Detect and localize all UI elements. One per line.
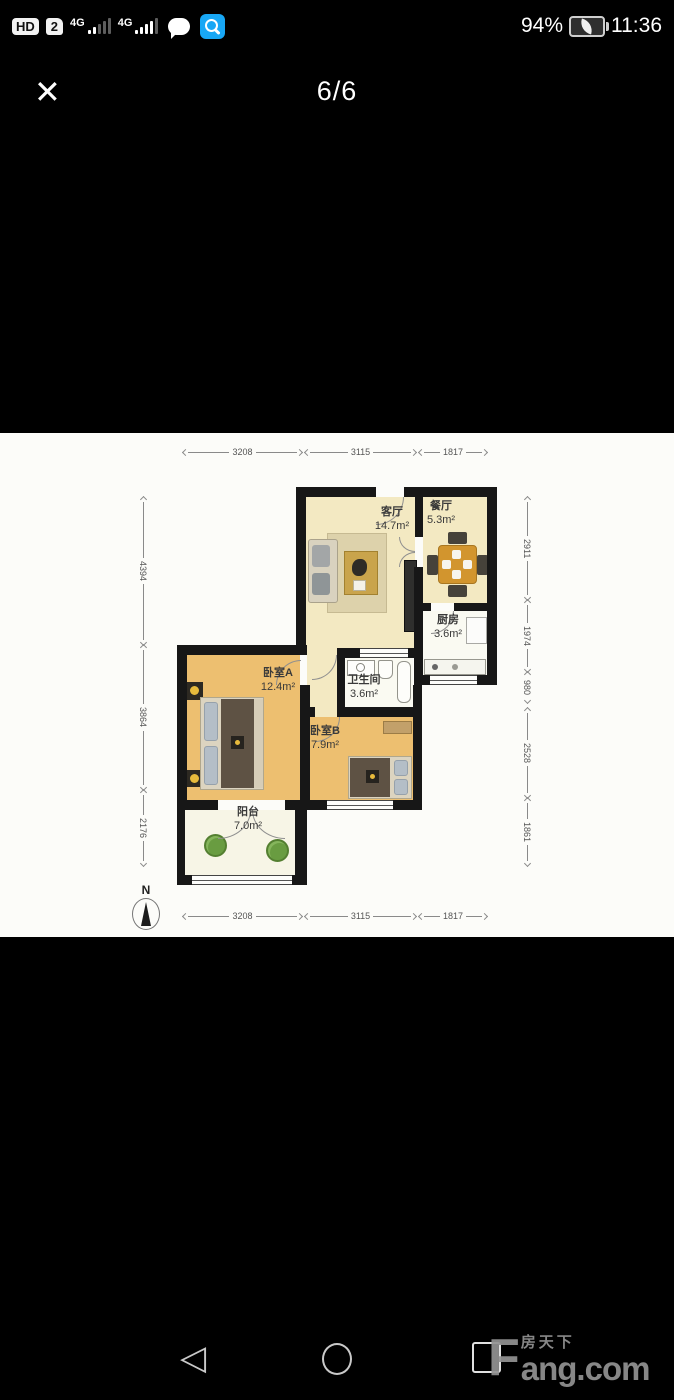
fang-logo-en: ang.com [521,1352,650,1386]
compass-icon [132,898,160,930]
image-viewer-header: ✕ 6/6 [0,62,674,134]
message-icon [168,18,190,35]
wall [487,487,497,685]
android-nav-bar: ◁ F 房天下 ang.com [0,1328,674,1392]
place-setting [452,550,461,559]
dining-chair [448,532,467,544]
wall [404,487,497,497]
floorplan-image[interactable]: 客厅 14.7m² 餐厅 5.3m² 厨房 3.6m² 卧室A 12.4m² 卫… [0,433,674,937]
bed-decor-dot [370,774,375,779]
table-tray [353,580,366,591]
fang-logo-cn: 房天下 [521,1334,650,1351]
back-button[interactable]: ◁ [180,1338,206,1378]
dimension-left-2: 3864 [136,645,150,790]
wall [177,810,185,885]
dimension-bottom-3: 1817 [419,910,487,922]
washbasin [356,663,365,672]
room-label-balcony: 阳台 7.0m² [208,805,288,834]
stove-burner [432,664,438,670]
dimension-bottom-1: 3208 [183,910,302,922]
dimension-right-3: 980 [520,672,534,708]
wall [307,707,315,717]
fang-logo-initial: F [488,1328,520,1388]
dining-chair [448,585,467,597]
network-type-label: 4G [70,18,85,28]
status-time: 11:36 [611,14,662,38]
dimension-top-1: 3208 [183,446,302,458]
fang-watermark: F 房天下 ang.com [488,1328,649,1388]
wall [296,487,306,648]
bed-decor-dot [235,740,240,745]
dimension-top-3: 1817 [419,446,487,458]
dimension-top-2: 3115 [305,446,416,458]
room-label-bedroom-b: 卧室B 7.9m² [285,724,365,753]
wall [177,645,187,810]
wall [423,603,431,611]
signal-bars-icon [135,18,158,34]
sim2-icon: 2 [46,18,63,35]
pillow [394,779,408,795]
window [360,648,408,658]
dimension-bottom-2: 3115 [305,910,416,922]
lamp [190,686,199,695]
dimension-left-3: 2176 [136,790,150,866]
battery-percent: 94% [521,14,563,38]
wall [454,603,497,611]
dimension-right-4: 2528 [520,708,534,798]
place-setting [442,560,451,569]
sofa-cushion [312,545,330,567]
hd-icon: HD [12,18,39,35]
wall [413,685,422,810]
dimension-right-5: 1861 [520,798,534,866]
dimension-right-2: 1974 [520,600,534,672]
signal-icon-2: 4G [118,18,159,34]
lamp [190,774,199,783]
network-type-label: 4G [118,18,133,28]
status-icons-left: HD 2 4G 4G [12,14,225,39]
search-icon [200,14,225,39]
signal-bars-icon [88,18,111,34]
wall [295,810,307,885]
room-label-kitchen: 厨房 3.6m² [408,613,488,642]
window [192,875,292,885]
wall [177,645,307,655]
wall [296,487,376,497]
room-label-dining: 餐厅 5.3m² [401,499,481,528]
sofa-cushion [312,573,330,595]
compass-north: N [128,883,164,930]
room-label-bathroom: 卫生间 3.6m² [324,673,404,702]
battery-saver-icon [569,16,605,37]
home-button[interactable] [322,1343,352,1375]
bed-a-footer [254,699,263,788]
window [327,800,393,810]
table-decor [352,559,367,576]
dimension-left-1: 4394 [136,497,150,645]
place-setting [452,570,461,579]
pillow [394,760,408,776]
pillow [204,746,218,785]
wall [341,707,420,717]
plant [266,839,289,862]
page-indicator: 6/6 [0,76,674,107]
compass-n-label: N [128,883,164,897]
signal-icon-1: 4G [70,18,111,34]
dining-chair [427,555,438,575]
status-bar: HD 2 4G 4G 94% 11:36 [0,0,674,52]
room-label-bedroom-a: 卧室A 12.4m² [238,666,318,695]
dresser [383,721,412,734]
place-setting [463,560,472,569]
dimension-right-1: 2911 [520,497,534,600]
status-icons-right: 94% 11:36 [521,14,662,38]
sink [452,664,458,670]
window [430,675,477,685]
pillow [204,702,218,741]
